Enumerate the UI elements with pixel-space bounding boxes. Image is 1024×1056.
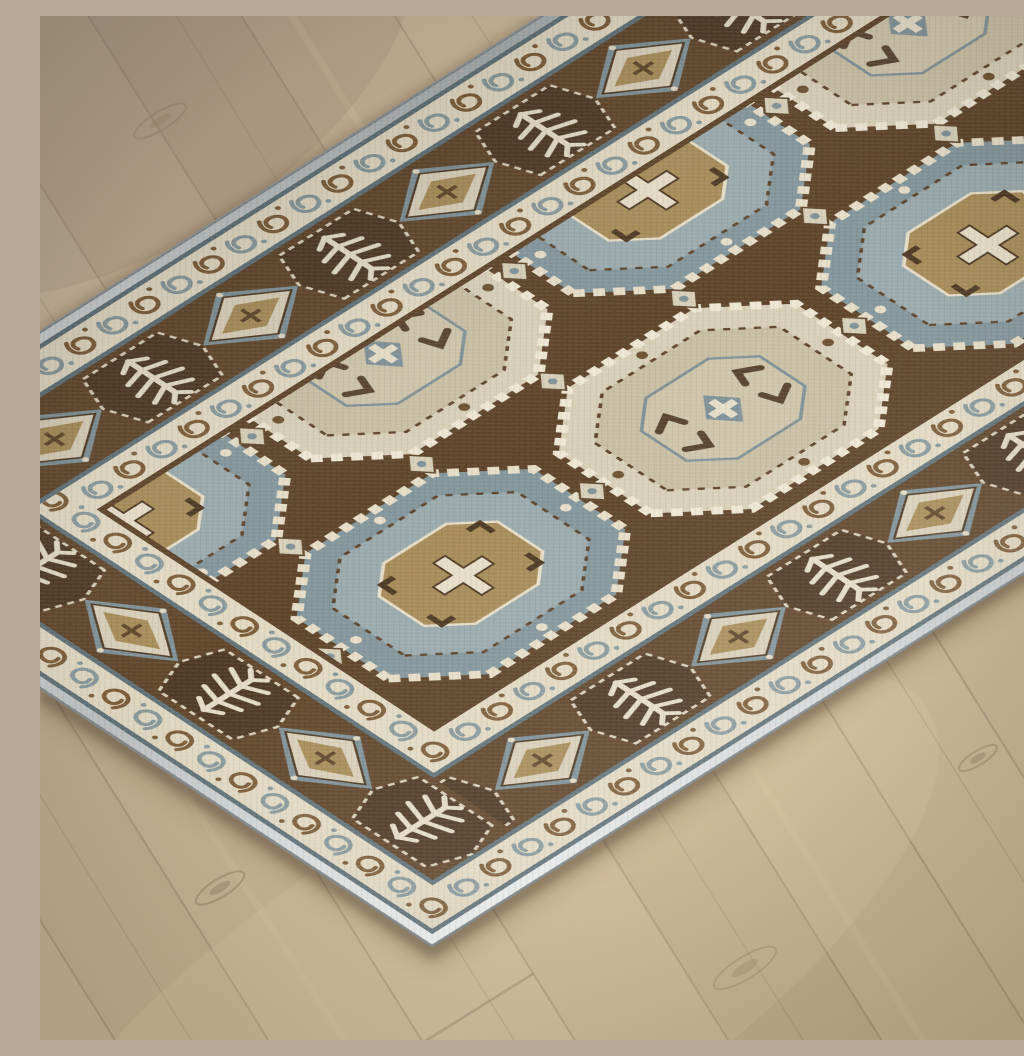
scene — [40, 16, 1024, 1040]
photo-grain — [40, 16, 1024, 1040]
rug-product-photo — [40, 16, 1024, 1040]
